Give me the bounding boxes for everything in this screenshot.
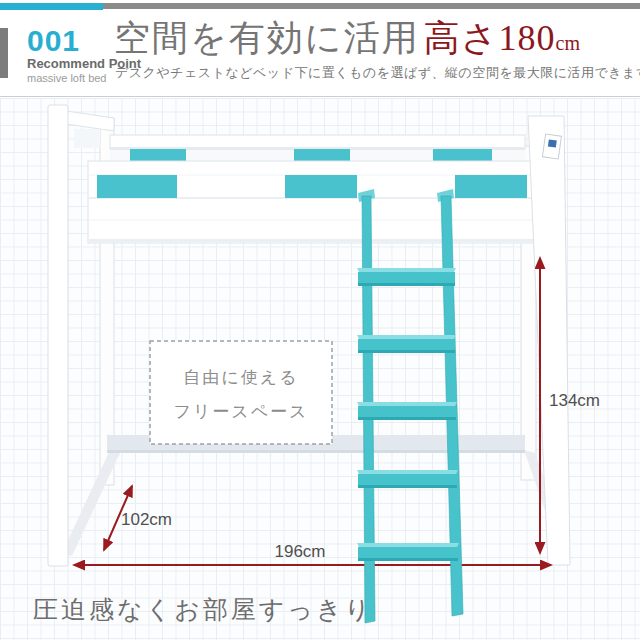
bed-lower-rail-edge <box>107 450 525 453</box>
fascia-bottom-shadow <box>89 239 555 242</box>
accent-bar-gray <box>103 3 640 9</box>
ladder-rung <box>357 470 458 488</box>
free-space-label-line2: フリースペース <box>174 402 309 421</box>
ladder-rung <box>357 268 456 286</box>
section-title-line: 空間を有効に活用 高さ180cm <box>114 14 580 63</box>
bed-left-front-post <box>48 105 68 566</box>
ladder-rung <box>357 543 459 561</box>
point-vertical-bar <box>0 28 8 78</box>
loft-bed-drawing: 自由に使える フリースペース 134cm 196cm 102cm <box>0 98 640 640</box>
free-space-box: 自由に使える フリースペース <box>150 341 332 444</box>
ladder-rung <box>357 335 456 353</box>
recommend-point-block: 001 Recommend Point massive loft bed <box>0 26 112 90</box>
point-sublabel: massive loft bed <box>27 72 106 84</box>
bottom-caption: 圧迫感なくお部屋すっきり <box>33 593 373 626</box>
headboard-top-rail <box>66 111 114 131</box>
loft-bed-figure: 自由に使える フリースペース 134cm 196cm 102cm <box>0 98 640 640</box>
section-title: 空間を有効に活用 <box>114 18 420 58</box>
product-feature-panel: 001 Recommend Point massive loft bed 空間を… <box>0 0 640 640</box>
ladder-rung <box>357 402 457 420</box>
height-dimension-label: 134cm <box>549 391 600 410</box>
left-leg-shadow <box>62 450 120 556</box>
bed-rear-guard-rail <box>110 135 525 149</box>
section-title-highlight: 高さ180 <box>424 18 556 58</box>
accent-bar-cyan <box>0 3 103 10</box>
teal-slats-upper <box>130 149 492 162</box>
bed-front-fascia <box>88 161 556 243</box>
section-description: デスクやチェストなどベッド下に置くものを選ばず、縦の空間を最大限に活用できます。 <box>115 64 640 82</box>
point-number: 001 <box>27 26 80 56</box>
free-space-label-line1: 自由に使える <box>183 368 298 387</box>
header: 001 Recommend Point massive loft bed 空間を… <box>0 0 640 97</box>
headboard-window <box>74 129 100 148</box>
teal-slats-lower <box>97 175 527 198</box>
product-sticker <box>542 134 561 159</box>
width-dimension-label: 196cm <box>274 542 325 561</box>
depth-dimension-label: 102cm <box>121 510 172 529</box>
section-title-unit: cm <box>556 32 580 54</box>
ladder <box>357 189 463 623</box>
